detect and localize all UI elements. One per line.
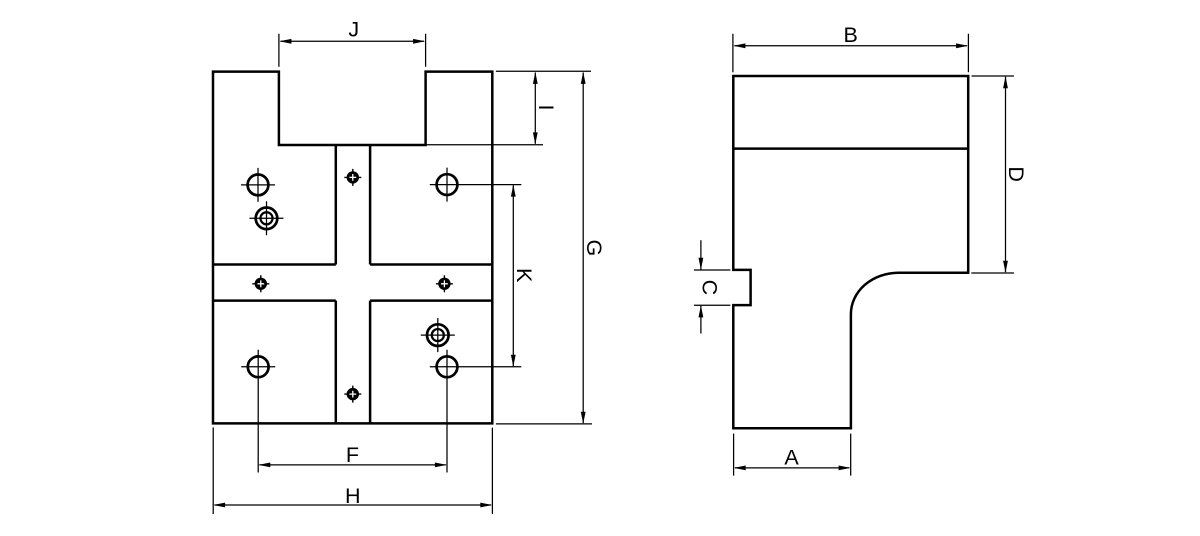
svg-text:H: H xyxy=(345,484,361,508)
svg-text:F: F xyxy=(346,443,359,467)
svg-text:G: G xyxy=(582,239,606,256)
svg-text:I: I xyxy=(534,105,558,111)
svg-text:K: K xyxy=(512,268,536,283)
svg-text:C: C xyxy=(698,280,722,296)
svg-text:J: J xyxy=(348,18,359,42)
svg-text:B: B xyxy=(844,23,858,47)
svg-text:D: D xyxy=(1004,166,1028,182)
svg-text:A: A xyxy=(784,445,799,469)
